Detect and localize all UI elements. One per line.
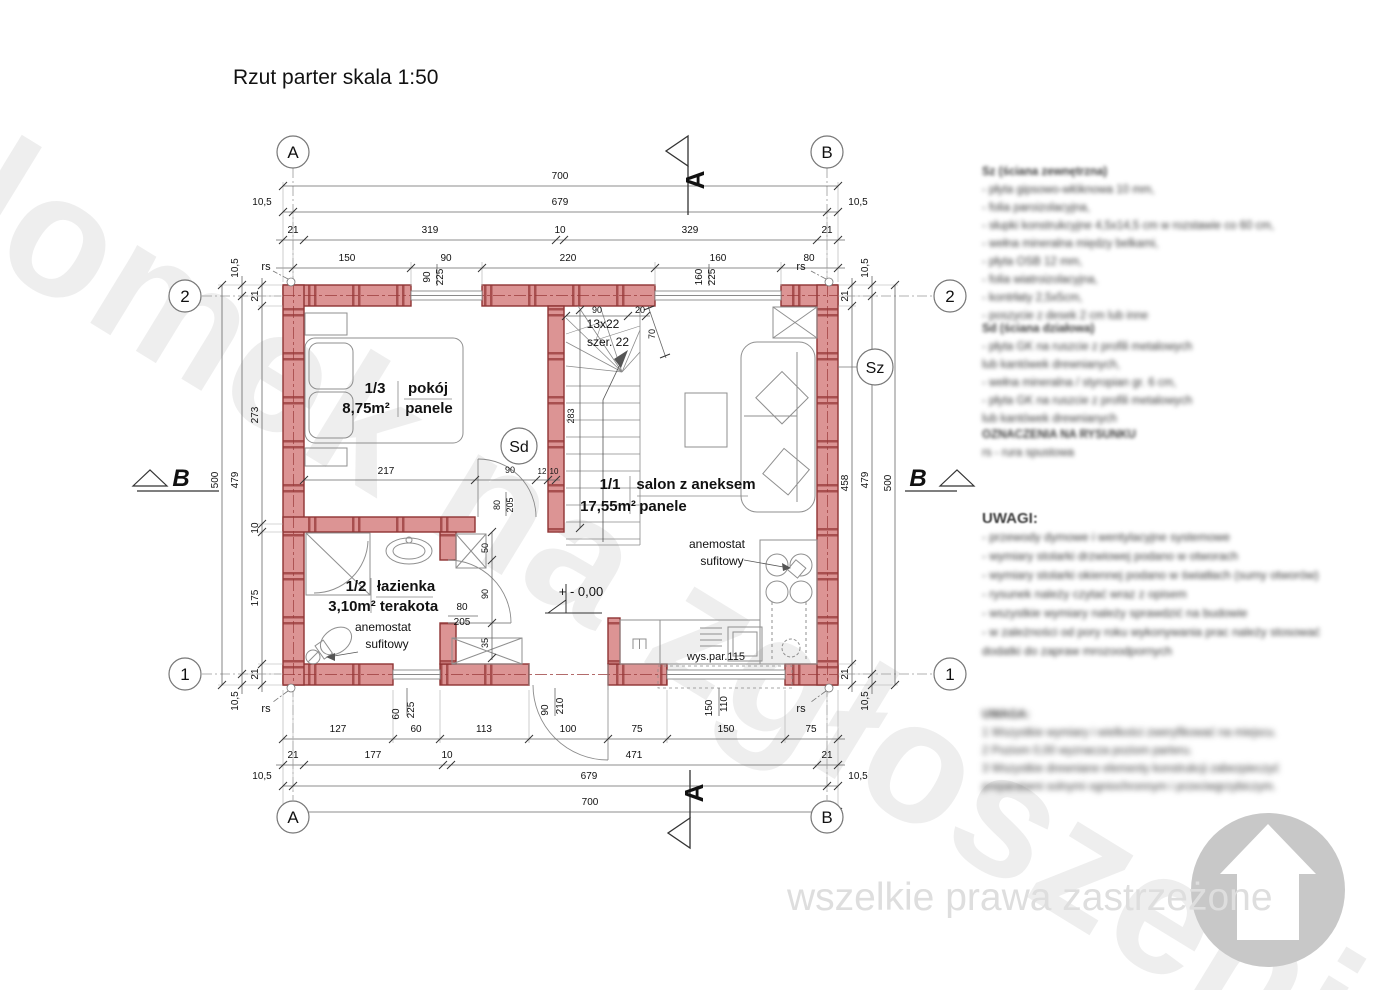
entry-door-arc (533, 685, 608, 760)
plan-label: 458 (840, 474, 851, 491)
plan-label: rs (261, 703, 271, 715)
plan-label: 2 (945, 287, 954, 306)
plan-label: 1 (945, 665, 954, 684)
plan-label: 10,5 (860, 691, 871, 711)
plan-label: 35 (480, 638, 490, 648)
plan-label: 100 (560, 724, 577, 735)
plan-label: 10,5 (252, 197, 272, 208)
plan-label: 21 (821, 750, 833, 761)
plan-label: 150 (718, 724, 735, 735)
plan-label: 10,5 (848, 197, 868, 208)
plan-label: 1 (180, 665, 189, 684)
plan-label: A (680, 170, 710, 189)
plan-label: 21 (840, 668, 851, 680)
plan-label: 10,5 (252, 771, 272, 782)
plan-label: 80 (456, 602, 468, 613)
plan-label: 3,10m² (328, 598, 376, 615)
plan-label: 21 (287, 225, 299, 236)
legend-line: - wszystkie wymiary należy sprawdzić na … (982, 604, 1332, 623)
plan-label: 205 (505, 497, 515, 512)
plan-label: anemostat (355, 620, 412, 634)
legend-line: rs - rura spustowa (982, 444, 1332, 462)
plan-label: 283 (566, 408, 576, 423)
plan-label: 70 (647, 329, 657, 339)
plan-label: 90 (505, 465, 515, 475)
plan-label: 50 (480, 543, 490, 553)
sink-symbol (782, 639, 800, 657)
legend-line: - płyta gipsowo-włóknowa 10 mm, (982, 181, 1332, 199)
plan-label: 90 (422, 271, 433, 283)
legend-line: - folia paroizolacyjna, (982, 199, 1332, 217)
legend-line: lub kantówek drewnianych, (982, 356, 1332, 374)
plan-label: 10 (550, 467, 559, 476)
plan-label: rs (796, 703, 806, 715)
plan-label: 127 (330, 724, 347, 735)
plan-label: 21 (250, 290, 261, 302)
plan-label: 329 (682, 225, 699, 236)
plan-label: 205 (454, 617, 471, 628)
plan-label: rs (796, 261, 806, 273)
legend-line: - płyta GK na ruszcie z profili metalowy… (982, 392, 1332, 410)
plan-label: 90 (480, 589, 490, 599)
plan-label: 21 (250, 668, 261, 680)
plan-label: 225 (707, 268, 718, 285)
plan-label: Sd (509, 439, 529, 456)
legend-heading: UWAGA: (982, 706, 1332, 724)
plan-label: Sz (866, 360, 885, 377)
legend-line: preparatami solnymi ogniochronnym i prze… (982, 778, 1332, 796)
plan-label: B (821, 143, 832, 162)
plan-label: 17,55m² (580, 498, 636, 515)
legend-heading: UWAGI: (982, 510, 1332, 528)
plan-label: 21 (287, 750, 299, 761)
blueprint-canvas: domek na zgłoszenie Rzut parter skala 1:… (0, 0, 1392, 990)
plan-label: 113 (476, 724, 492, 735)
nightstand (305, 448, 347, 466)
plan-label: 2 (180, 287, 189, 306)
plan-label: 10,5 (230, 691, 241, 711)
plan-label: 110 (719, 696, 730, 712)
legend-line: - przewody dymowe i wentylacyjne systemo… (982, 528, 1332, 547)
plan-label: 700 (552, 171, 569, 182)
plan-label: 150 (339, 253, 356, 264)
floor-plan: 70067910,510,521319103292115090220160809… (0, 0, 1392, 990)
plan-label: 679 (552, 197, 569, 208)
plan-label: 90 (540, 704, 551, 716)
plan-label: 12 (538, 467, 547, 476)
plan-label: B (172, 465, 189, 492)
plan-label: rs (261, 261, 271, 273)
pillow (309, 343, 353, 389)
plan-label: 175 (250, 589, 261, 606)
plan-label: 60 (391, 708, 402, 720)
stove-burner (790, 581, 812, 603)
plan-label: + - 0,00 (559, 584, 603, 599)
plan-label: 80 (492, 500, 502, 510)
plan-label: B (821, 808, 832, 827)
legend-line: - płyta GK na ruszcie z profili metalowy… (982, 338, 1332, 356)
plan-label: 160 (694, 268, 705, 285)
legend-line: - płyta OSB 12 mm, (982, 253, 1332, 271)
plan-label: wys.par.115 (686, 651, 745, 663)
plan-label: 90 (592, 305, 602, 315)
legend-line: - folia wiatroizolacyjna, (982, 271, 1332, 289)
plan-label: anemostat (689, 537, 746, 551)
legend-line: - rysunek należy czytać wraz z opisem (982, 585, 1332, 604)
legend-section: Sd (ściana działowa)- płyta GK na ruszci… (982, 320, 1332, 428)
plan-label: 225 (406, 701, 417, 718)
plan-label: 90 (440, 253, 452, 264)
plan-label: A (287, 808, 299, 827)
plan-label: 273 (250, 406, 261, 423)
legend-line: dodatki do zapraw mrozoodpornych (982, 642, 1332, 661)
plan-label: 479 (860, 471, 871, 488)
plan-label: 1/1 (600, 476, 621, 493)
plan-label: 13x22 (587, 317, 620, 331)
legend-line: - w zależności od pory roku wykonywania … (982, 623, 1332, 642)
plan-label: 10 (441, 750, 453, 761)
plan-label: 210 (555, 697, 566, 714)
plan-label: 10,5 (230, 258, 241, 278)
stove-burner (766, 581, 788, 603)
legend-section: OZNACZENIA NA RYSUNKUrs - rura spustowa (982, 426, 1332, 462)
plan-label: 21 (840, 290, 851, 302)
plan-label: A (679, 783, 709, 802)
plan-label: salon z aneksem (636, 476, 755, 493)
plan-label: 10 (250, 522, 261, 534)
plan-label: 217 (378, 466, 395, 477)
plan-label: 75 (805, 724, 817, 735)
plan-label: 319 (422, 225, 439, 236)
legend-line: - słupki konstrukcyjne 4,5x14,5 cm w roz… (982, 217, 1332, 235)
plan-label: 471 (626, 750, 643, 761)
plan-label: 479 (230, 471, 241, 488)
plan-label: 500 (883, 474, 894, 491)
plan-label: 679 (581, 771, 598, 782)
plan-label: 160 (710, 253, 727, 264)
plan-label: 225 (435, 268, 446, 285)
plan-label: 177 (365, 750, 382, 761)
copyright-watermark: wszelkie prawa zastrzeżone (787, 876, 1273, 920)
legend-line: - wymiary stolarki okiennej podano w świ… (982, 566, 1332, 585)
plan-label: szer. 22 (587, 335, 629, 349)
plan-label: 500 (210, 471, 221, 488)
plan-label: łazienka (377, 578, 436, 595)
sofa-pillow (763, 448, 809, 494)
legend-section: UWAGA:1 Wszystkie wymiary i wielkości zw… (982, 706, 1332, 796)
plan-label: pokój (408, 380, 448, 397)
plan-label: B (909, 465, 926, 492)
legend-line: 3 Wszystkie drewniane elementy konstrukc… (982, 760, 1332, 778)
wardrobe (773, 307, 817, 338)
plan-label: sufitowy (365, 637, 408, 651)
plan-label: terakota (380, 598, 439, 615)
plan-label: panele (405, 400, 453, 417)
plan-label: 21 (821, 225, 833, 236)
section-mark-A-bottom (668, 770, 690, 848)
legend-section: Sz (ściana zewnętrzna)- płyta gipsowo-wł… (982, 163, 1332, 325)
legend-section: UWAGI:- przewody dymowe i wentylacyjne s… (982, 510, 1332, 661)
plan-label: A (287, 143, 299, 162)
plan-label: 220 (560, 253, 577, 264)
legend-line: - wełna mineralna / styropian gr. 6 cm, (982, 374, 1332, 392)
plan-label: 20 (635, 305, 645, 315)
legend-line: - wymiary stolarki drzwiowej podano w ot… (982, 547, 1332, 566)
plan-label: 8,75m² (342, 400, 390, 417)
legend-heading: Sz (ściana zewnętrzna) (982, 163, 1332, 181)
legend-heading: Sd (ściana działowa) (982, 320, 1332, 338)
plan-label: sufitowy (700, 554, 743, 568)
plan-label: 150 (704, 699, 715, 716)
plan-label: 60 (410, 724, 422, 735)
legend-heading: OZNACZENIA NA RYSUNKU (982, 426, 1332, 444)
legend-line: 1 Wszystkie wymiary i wielkości zweryfik… (982, 724, 1332, 742)
legend-line: - wełna mineralna między belkami, (982, 235, 1332, 253)
plan-label: 700 (582, 797, 599, 808)
legend-line: - kontrłaty 2,5x5cm, (982, 289, 1332, 307)
plan-label: 75 (631, 724, 643, 735)
legend-line: 2 Poziom 0,00 wyznacza poziom parteru. (982, 742, 1332, 760)
plan-label: panele (639, 498, 687, 515)
plan-label: 10 (554, 225, 566, 236)
niche-mark (633, 639, 646, 649)
plan-label: 1/3 (365, 380, 386, 397)
dresser (305, 313, 347, 335)
plan-label: 1/2 (346, 578, 367, 595)
plan-label: 10,5 (848, 771, 868, 782)
plan-label: 10,5 (860, 258, 871, 278)
coffee-table (685, 393, 727, 447)
